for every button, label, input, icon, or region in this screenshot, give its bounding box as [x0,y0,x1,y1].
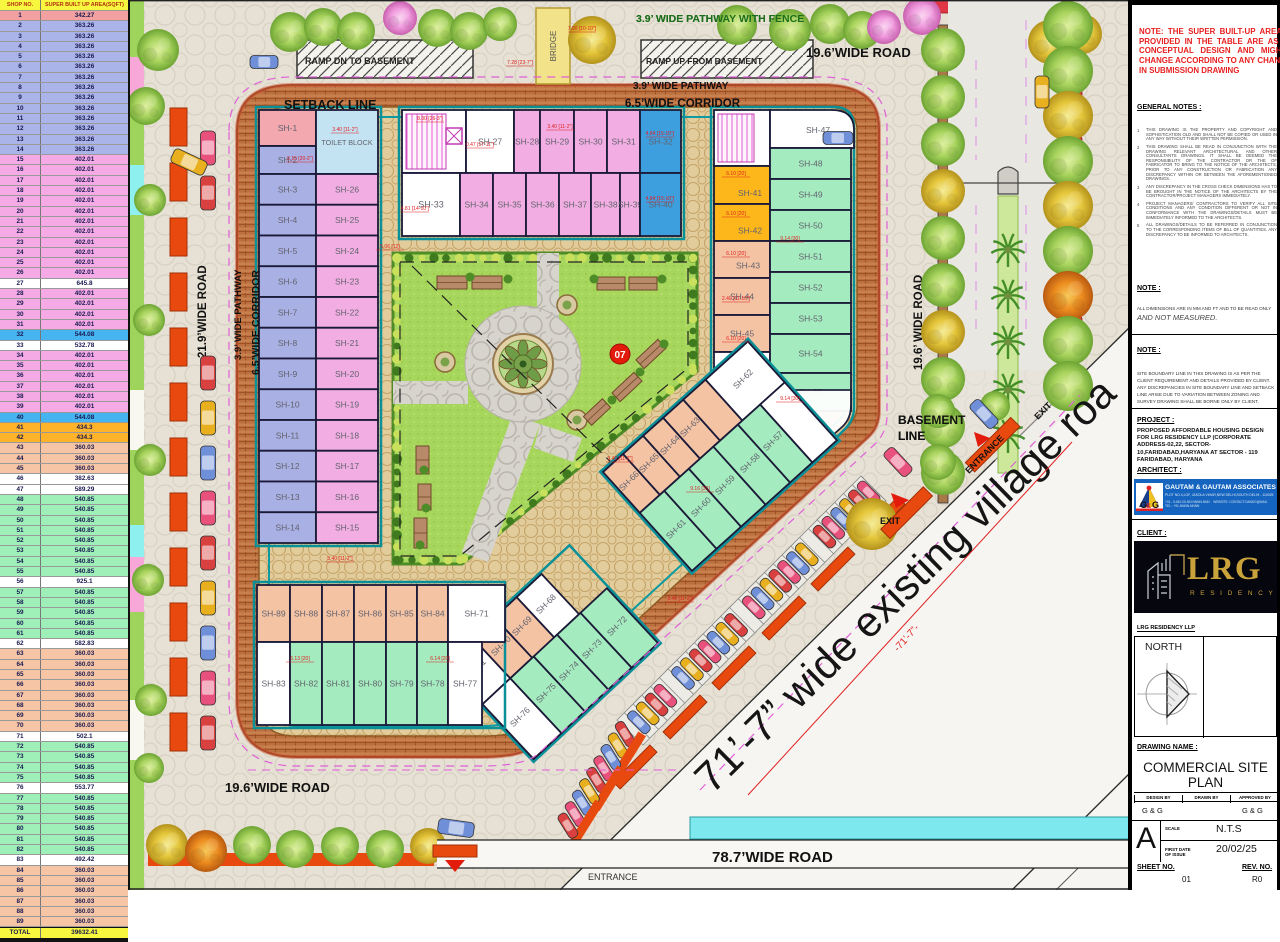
svg-text:SH-26: SH-26 [335,184,359,194]
svg-text:7.28 [23-7″]: 7.28 [23-7″] [507,60,533,66]
svg-text:SH-4: SH-4 [278,215,298,225]
svg-text:SH-79: SH-79 [389,679,413,689]
svg-text:SH-18: SH-18 [335,430,359,440]
svg-text:BRIDGE: BRIDGE [549,31,558,62]
svg-text:SH-86: SH-86 [358,609,382,619]
svg-text:SH-50: SH-50 [798,221,822,231]
svg-text:SH-37: SH-37 [563,200,587,210]
svg-text:SH-24: SH-24 [335,246,359,256]
svg-text:6.13 [20]: 6.13 [20] [290,656,310,662]
svg-text:SH-19: SH-19 [335,400,359,410]
svg-text:SH-17: SH-17 [335,461,359,471]
svg-text:SH-31: SH-31 [611,137,635,147]
svg-text:SH-7: SH-7 [278,307,298,317]
svg-text:SH-21: SH-21 [335,338,359,348]
svg-text:SH-6: SH-6 [278,277,298,287]
svg-text:SH-30: SH-30 [578,137,602,147]
svg-text:SH-80: SH-80 [358,679,382,689]
svg-text:SH-89: SH-89 [261,609,285,619]
svg-text:SETBACK LINE: SETBACK LINE [284,98,376,112]
svg-text:SH-23: SH-23 [335,277,359,287]
svg-text:SH-43: SH-43 [736,261,760,271]
svg-text:RAMP DN TO BASEMENT: RAMP DN TO BASEMENT [305,56,415,66]
svg-text:EXIT: EXIT [880,516,901,526]
svg-text:SH-78: SH-78 [420,679,444,689]
svg-text:SH-22: SH-22 [335,307,359,317]
svg-text:SH-87: SH-87 [326,609,350,619]
svg-text:SH-16: SH-16 [335,492,359,502]
svg-text:SH-25: SH-25 [335,215,359,225]
svg-text:SH-82: SH-82 [294,679,318,689]
svg-text:3.40 [11-2″]: 3.40 [11-2″] [332,127,358,133]
svg-text:4.84 [15-10″]: 4.84 [15-10″] [646,196,675,202]
svg-text:3.40 [11-2″]: 3.40 [11-2″] [607,456,633,462]
svg-text:SH-15: SH-15 [335,523,359,533]
svg-text:ENTRANCE: ENTRANCE [588,872,638,882]
svg-text:5.06 [12]: 5.06 [12] [380,244,400,250]
svg-text:SH-84: SH-84 [420,609,444,619]
svg-text:3.9’ WIDE PATHWAY: 3.9’ WIDE PATHWAY [633,81,729,92]
svg-text:LINE: LINE [898,429,925,443]
svg-text:SH-14: SH-14 [275,523,299,533]
svg-text:6.5’WIDE CORRIDOR: 6.5’WIDE CORRIDOR [250,270,262,375]
svg-text:6.10 [20]: 6.10 [20] [726,171,746,177]
svg-text:SH-38: SH-38 [593,200,617,210]
svg-text:6.14 [20]: 6.14 [20] [430,656,450,662]
svg-text:SH-71: SH-71 [464,609,488,619]
svg-text:3.9’ WIDE PATHWAY WITH FENCE: 3.9’ WIDE PATHWAY WITH FENCE [636,13,804,25]
svg-text:0.47 [17-11″]: 0.47 [17-11″] [466,142,495,148]
svg-text:19.6’WIDE ROAD: 19.6’WIDE ROAD [225,780,330,795]
svg-text:78.7’WIDE ROAD: 78.7’WIDE ROAD [712,849,833,866]
svg-text:6.5’WIDE CORRIDOR: 6.5’WIDE CORRIDOR [625,98,741,110]
svg-text:3.40 [11-2″]: 3.40 [11-2″] [667,596,693,602]
svg-text:7.00 [10-10″]: 7.00 [10-10″] [568,26,597,32]
svg-text:SH-5: SH-5 [278,246,298,256]
svg-text:SH-41: SH-41 [738,188,762,198]
svg-text:RAMP UP FROM BASEMENT: RAMP UP FROM BASEMENT [646,56,763,66]
svg-text:9.14 [30]: 9.14 [30] [780,236,800,242]
svg-text:SH-1: SH-1 [278,123,298,133]
svg-text:21.9’WIDE ROAD: 21.9’WIDE ROAD [197,265,209,358]
svg-text:3.9’ WIDE PATHWAY: 3.9’ WIDE PATHWAY [233,269,244,360]
svg-text:TOILET BLOCK: TOILET BLOCK [321,138,372,147]
svg-text:SH-35: SH-35 [497,200,521,210]
svg-text:SH-81: SH-81 [326,679,350,689]
svg-text:4.84 [15-10″]: 4.84 [15-10″] [646,131,675,137]
svg-text:SH-13: SH-13 [275,492,299,502]
svg-text:SH-11: SH-11 [276,430,300,440]
svg-text:BASEMENT: BASEMENT [898,413,966,427]
svg-text:SH-51: SH-51 [798,252,822,262]
svg-text:07: 07 [614,350,626,361]
svg-text:SH-36: SH-36 [530,200,554,210]
svg-text:9.14 [30]: 9.14 [30] [780,396,800,402]
svg-text:SH-20: SH-20 [335,369,359,379]
svg-text:SH-29: SH-29 [545,137,569,147]
svg-text:2.40 [11-10″]: 2.40 [11-10″] [722,296,751,302]
svg-text:SH-53: SH-53 [798,314,822,324]
svg-text:SH-52: SH-52 [798,283,822,293]
svg-text:6.10 [20]: 6.10 [20] [726,251,746,257]
svg-text:SH-12: SH-12 [275,461,299,471]
svg-text:SH-77: SH-77 [453,679,477,689]
svg-text:4.81 [14-10″]: 4.81 [14-10″] [401,206,430,212]
svg-text:6.10 [20]: 6.10 [20] [726,211,746,217]
svg-text:SH-10: SH-10 [275,400,299,410]
svg-text:3.40 [11-2″]: 3.40 [11-2″] [547,124,573,130]
svg-text:6.10 [20]: 6.10 [20] [726,336,746,342]
svg-text:SH-88: SH-88 [294,609,318,619]
svg-text:SH-3: SH-3 [278,184,298,194]
svg-text:SH-83: SH-83 [261,679,285,689]
svg-text:SH-42: SH-42 [738,226,762,236]
svg-text:SH-54: SH-54 [798,349,822,359]
svg-text:8.00 [26-3″]: 8.00 [26-3″] [417,116,443,122]
svg-text:SH-32: SH-32 [648,137,672,147]
svg-text:SH-48: SH-48 [798,159,822,169]
svg-text:SH-9: SH-9 [278,369,298,379]
svg-text:SH-28: SH-28 [515,137,539,147]
svg-text:SH-49: SH-49 [798,190,822,200]
svg-text:SH-39: SH-39 [618,200,642,210]
svg-text:SH-34: SH-34 [464,200,488,210]
svg-text:6.15 [20-2″]: 6.15 [20-2″] [287,156,313,162]
svg-text:3.40 [11-2″]: 3.40 [11-2″] [327,556,353,562]
svg-text:SH-8: SH-8 [278,338,298,348]
svg-text:9.16 [30]: 9.16 [30] [690,486,710,492]
svg-text:SH-85: SH-85 [389,609,413,619]
